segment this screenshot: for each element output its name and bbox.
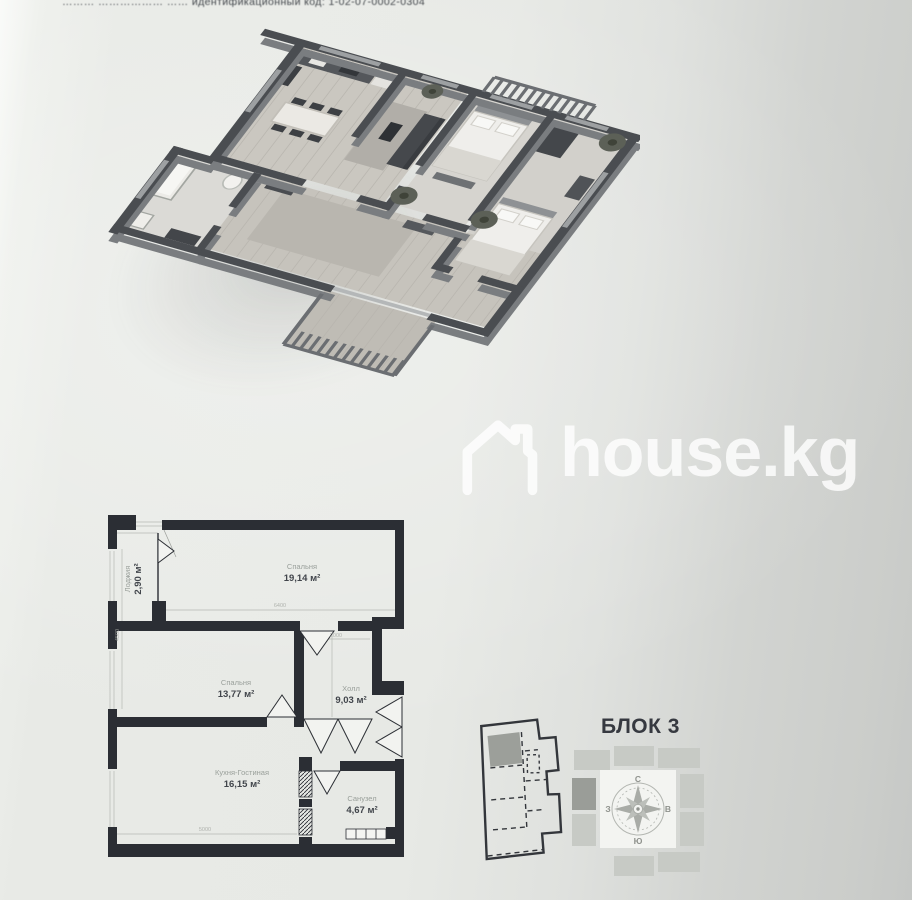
- house-icon: [452, 406, 544, 498]
- compass-south: Ю: [634, 836, 643, 846]
- svg-text:4,67 м²: 4,67 м²: [346, 805, 377, 816]
- svg-text:2,90 м²: 2,90 м²: [133, 563, 144, 594]
- document-top-caption: ……… ……………… …… идентификационный код: 1-0…: [62, 0, 682, 8]
- compass-east: В: [665, 804, 671, 814]
- room-label-hall: Холл: [342, 684, 360, 693]
- svg-text:16,15 м²: 16,15 м²: [224, 779, 261, 790]
- compass-north: С: [635, 774, 641, 784]
- isometric-3d-render: [95, 28, 640, 423]
- svg-text:13,77 м²: 13,77 м²: [218, 689, 255, 700]
- plan-doors: [158, 533, 402, 794]
- highlighted-unit: [487, 732, 522, 767]
- svg-text:9,03 м²: 9,03 м²: [335, 695, 366, 706]
- watermark: house.kg: [452, 398, 912, 506]
- block-title: БЛОК 3: [601, 715, 680, 739]
- watermark-brand: house.kg: [560, 417, 859, 487]
- room-label-loggia: Лоджия: [123, 566, 132, 593]
- room-label-bathroom: Санузел: [347, 794, 376, 803]
- site-plan: С Ю З В: [570, 740, 706, 882]
- dim-hall: 2000: [330, 633, 342, 639]
- dim-left: 4500: [115, 629, 121, 641]
- dim-top: 6400: [274, 603, 286, 609]
- dim-bottom: 5000: [199, 827, 211, 833]
- compass-west: З: [605, 804, 610, 814]
- svg-text:19,14 м²: 19,14 м²: [284, 573, 321, 584]
- room-label-kitchen-living: Кухня-Гостиная: [215, 768, 269, 777]
- room-label-bedroom-19: Спальня: [287, 562, 317, 571]
- building-key-plan: [471, 710, 579, 875]
- room-label-bedroom-13: Спальня: [221, 678, 251, 687]
- floor-plan-2d: Спальня 19,14 м² Лоджия 2,90 м² Спальня …: [108, 513, 406, 863]
- floorplan-photo-page: ……… ……………… …… идентификационный код: 1-0…: [0, 0, 912, 900]
- room-labels: Спальня 19,14 м² Лоджия 2,90 м² Спальня …: [123, 562, 378, 816]
